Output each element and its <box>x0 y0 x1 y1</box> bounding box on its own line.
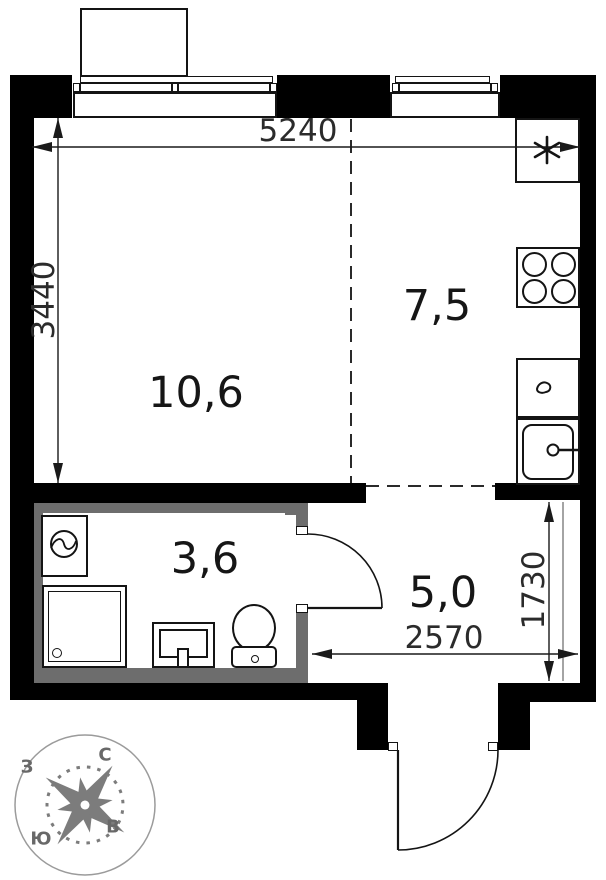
compass-rose-icon <box>15 735 155 875</box>
dim-label-top-width: 5240 <box>259 113 338 149</box>
compass-east-label: В <box>106 817 120 838</box>
living-room-area-label: 10,6 <box>148 368 244 418</box>
washer-drum-curve <box>51 539 76 549</box>
hallway-area-label: 5,0 <box>409 568 477 618</box>
floor-plan: 10,6 7,5 3,6 5,0 5240 3440 1730 2570 С З… <box>0 0 606 880</box>
compass-west-label: З <box>21 757 34 778</box>
entry-door-swing-arc <box>398 750 498 850</box>
entry-door <box>398 750 498 850</box>
kitchen-faucet-icon <box>548 445 581 456</box>
vent-shaft-icon <box>535 137 559 163</box>
bathroom-area-label: 3,6 <box>171 534 239 584</box>
compass-north-label: С <box>98 745 111 766</box>
dim-label-hallway-height: 1730 <box>516 551 552 630</box>
bathroom-door-swing-arc <box>308 534 382 608</box>
compass-south-label: Ю <box>30 829 51 850</box>
dim-label-left-height: 3440 <box>26 261 62 340</box>
counter-drop-icon <box>537 382 550 392</box>
kitchen-area-label: 7,5 <box>403 281 471 331</box>
dim-label-hallway-width: 2570 <box>405 620 484 656</box>
bathroom-door <box>308 534 382 608</box>
